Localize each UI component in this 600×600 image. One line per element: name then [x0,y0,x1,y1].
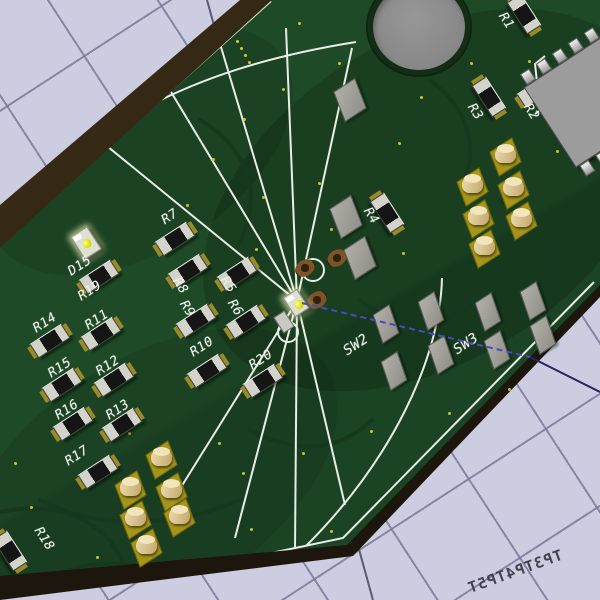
ratsnest-layer [0,0,600,600]
pcb-3d-viewport[interactable]: TP3TP4TP5T [0,0,600,600]
ratsnest-airwire-offboard [530,357,600,392]
ratsnest-airwire [302,303,530,357]
